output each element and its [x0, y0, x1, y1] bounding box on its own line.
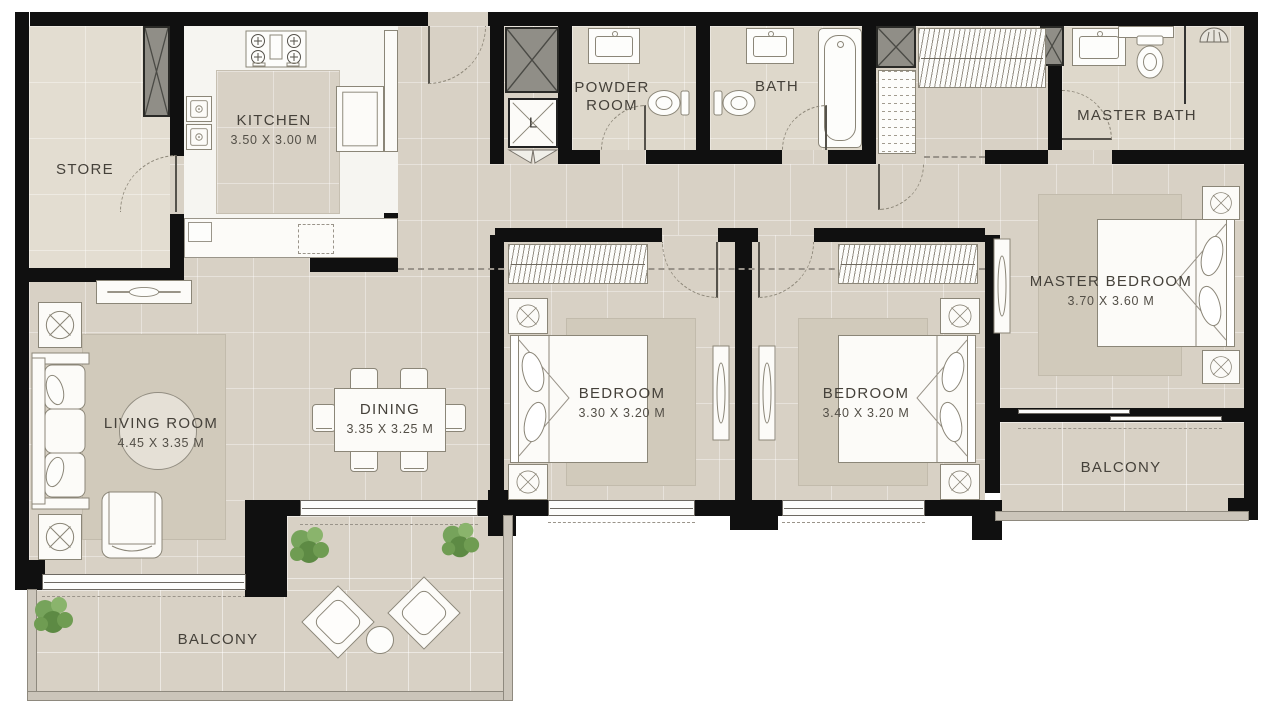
plant-icon	[438, 518, 482, 564]
wall	[495, 228, 662, 242]
wall	[15, 560, 45, 590]
shower-divider-wall	[1184, 26, 1186, 104]
balcony-parapet	[28, 692, 512, 700]
wall	[558, 150, 600, 164]
bedroom-1-window	[548, 500, 695, 516]
wall	[730, 500, 778, 530]
wall	[985, 150, 1048, 164]
laundry-marker: L	[529, 115, 537, 132]
kitchen-label: KITCHEN3.50 X 3.00 M	[231, 112, 318, 148]
window-threshold-line	[1018, 428, 1222, 429]
counter-sink	[188, 222, 212, 242]
plant-icon	[30, 592, 76, 640]
powder-sink	[588, 28, 640, 64]
toilet-icon	[712, 88, 758, 118]
floor-plan: L	[0, 0, 1280, 721]
bedroom-1-label: BEDROOM3.30 X 3.20 M	[579, 385, 666, 421]
stove-icon	[245, 30, 307, 68]
dining-window	[300, 500, 478, 516]
armchair	[100, 490, 164, 562]
master-bedroom-label: MASTER BEDROOM3.70 X 3.60 M	[1030, 273, 1192, 309]
kitchen-counter	[184, 218, 398, 258]
kitchen-sink	[186, 124, 212, 150]
bedside-table	[1202, 186, 1240, 220]
wall	[814, 228, 985, 242]
toilet-icon	[1132, 34, 1168, 82]
bedside-table	[940, 464, 980, 500]
entrance-opening	[428, 12, 488, 26]
bedside-table	[508, 464, 548, 500]
window-threshold-line	[548, 522, 695, 523]
shower-icon	[1198, 27, 1230, 44]
powder-room-label: POWDER ROOM	[566, 79, 658, 115]
balcony-table	[366, 626, 394, 654]
dining-chair	[312, 404, 336, 432]
wall	[490, 235, 504, 525]
wall	[735, 228, 752, 516]
dresser	[758, 345, 776, 441]
wall	[1112, 150, 1244, 164]
wall	[862, 12, 876, 164]
wall	[170, 214, 184, 282]
living-room-window	[42, 574, 246, 590]
dressing-hanging-rail	[918, 28, 1046, 88]
bath-sink	[746, 28, 794, 64]
bedroom-2-label: BEDROOM3.40 X 3.20 M	[823, 385, 910, 421]
wall	[828, 150, 876, 164]
wall	[972, 500, 1002, 540]
kitchen-tall-cabinet	[384, 30, 398, 152]
window-threshold-line	[782, 522, 925, 523]
dresser	[992, 238, 1012, 334]
side-table-planter	[38, 514, 82, 560]
wall	[245, 500, 287, 597]
kitchen-sink	[186, 96, 212, 122]
shaft-box	[505, 27, 559, 93]
shaft-box	[876, 26, 916, 68]
bedside-table	[1202, 350, 1240, 384]
under-counter-appliance	[298, 224, 334, 254]
store-label: STORE	[56, 161, 114, 179]
living-room-label: LIVING ROOM4.45 X 3.35 M	[104, 415, 218, 451]
bedside-table	[508, 298, 548, 334]
bedside-table	[940, 298, 980, 334]
ceiling-break-line	[924, 156, 985, 158]
dressing-shelves	[878, 70, 916, 154]
side-table-planter	[38, 302, 82, 348]
wall	[30, 12, 1258, 26]
master-bath-label: MASTER BATH	[1077, 107, 1197, 125]
balcony-master-label: BALCONY	[1081, 459, 1162, 477]
master-bedroom-sliding-door	[1018, 409, 1222, 421]
wardrobe	[838, 244, 978, 284]
refrigerator	[336, 86, 384, 152]
wall	[646, 150, 782, 164]
balcony-parapet	[504, 516, 512, 700]
dresser	[712, 345, 730, 441]
balcony-main-label: BALCONY	[178, 631, 259, 649]
wall	[696, 12, 710, 164]
wardrobe	[508, 244, 648, 284]
balcony-parapet	[996, 512, 1248, 520]
folding-door	[506, 148, 560, 166]
wall	[15, 12, 29, 584]
shaft-box	[143, 26, 170, 117]
bedroom-2-window	[782, 500, 925, 516]
wall	[170, 26, 184, 156]
wall	[490, 12, 504, 164]
tv-console	[96, 280, 192, 304]
wall	[1244, 12, 1258, 510]
plant-icon	[286, 522, 332, 570]
bath-label: BATH	[755, 78, 799, 96]
sofa	[31, 352, 99, 510]
dining-label: DINING3.35 X 3.25 M	[347, 401, 434, 437]
